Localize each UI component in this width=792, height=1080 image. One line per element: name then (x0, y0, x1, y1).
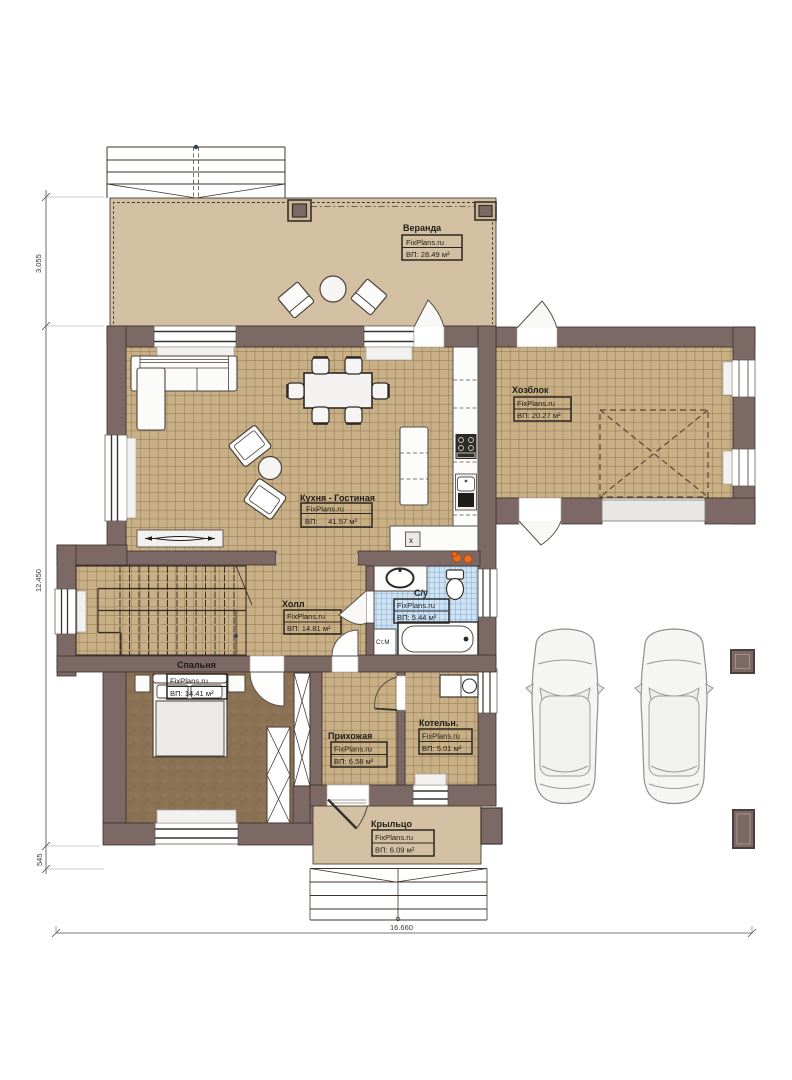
svg-text:ВП: 41.57 м²: ВП: 41.57 м² (305, 517, 358, 526)
svg-text:ВП: 20.27 м²: ВП: 20.27 м² (517, 411, 561, 420)
svg-text:FixPlans.ru: FixPlans.ru (287, 612, 325, 621)
svg-text:x: x (409, 536, 413, 545)
svg-text:FixPlans.ru: FixPlans.ru (375, 833, 413, 842)
svg-text:ВП: 5.44 м²: ВП: 5.44 м² (397, 613, 437, 622)
svg-text:FixPlans.ru: FixPlans.ru (517, 399, 555, 408)
svg-text:Крыльцо: Крыльцо (371, 819, 412, 829)
svg-text:FixPlans.ru: FixPlans.ru (306, 505, 344, 514)
svg-text:ВП: 14.81 м²: ВП: 14.81 м² (287, 624, 331, 633)
svg-text:Хозблок: Хозблок (512, 385, 549, 395)
svg-text:FixPlans.ru: FixPlans.ru (406, 238, 444, 247)
svg-text:ВП: 6.58 м²: ВП: 6.58 м² (334, 757, 374, 766)
svg-text:Прихожая: Прихожая (328, 731, 372, 741)
svg-text:Кухня - Гостиная: Кухня - Гостиная (300, 493, 375, 503)
svg-text:12.450: 12.450 (34, 569, 43, 592)
svg-text:Веранда: Веранда (403, 223, 442, 233)
svg-text:ВП: 6.09 м²: ВП: 6.09 м² (375, 846, 415, 855)
svg-text:С/у: С/у (414, 588, 428, 598)
svg-text:ВП: 14.41 м²: ВП: 14.41 м² (170, 689, 214, 698)
svg-text:Ст.М: Ст.М (376, 639, 390, 646)
svg-text:Спальня: Спальня (177, 660, 216, 670)
svg-text:FixPlans.ru: FixPlans.ru (422, 732, 460, 741)
svg-text:Холл: Холл (282, 599, 305, 609)
svg-text:FixPlans.ru: FixPlans.ru (334, 745, 372, 754)
svg-text:FixPlans.ru: FixPlans.ru (397, 601, 435, 610)
svg-text:545: 545 (35, 853, 44, 866)
svg-text:FixPlans.ru: FixPlans.ru (170, 677, 208, 686)
svg-text:ВП: 28.49 м²: ВП: 28.49 м² (406, 250, 450, 259)
svg-text:3.055: 3.055 (34, 254, 43, 273)
svg-text:ВП: 5.01 м²: ВП: 5.01 м² (422, 744, 462, 753)
svg-text:16.660: 16.660 (390, 923, 413, 932)
svg-text:Котельн.: Котельн. (419, 718, 458, 728)
